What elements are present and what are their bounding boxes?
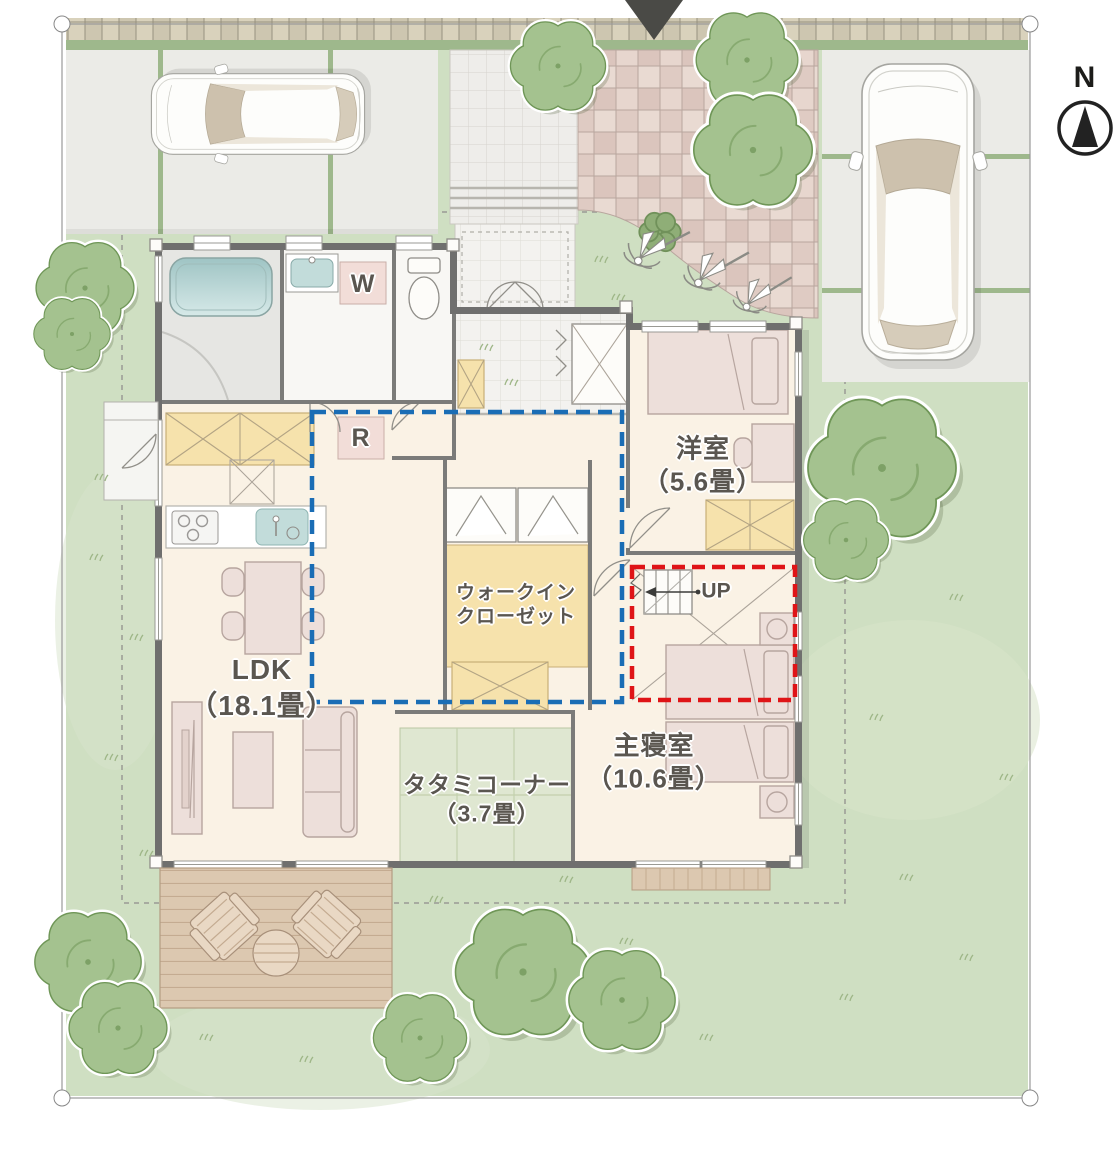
toilet-icon	[408, 258, 440, 319]
room-size: （3.7畳）	[403, 800, 571, 829]
compass-icon	[1059, 102, 1111, 154]
label-north: N	[1074, 59, 1097, 97]
label-walk-in-closet: ウォークイン クローゼット	[456, 582, 576, 631]
stove-icon	[172, 511, 218, 544]
washbasin-icon	[286, 254, 338, 292]
room-size: （18.1畳）	[189, 688, 335, 724]
nightstand-icon	[760, 786, 794, 818]
entrance-hall	[455, 314, 630, 414]
sink-icon	[256, 509, 308, 545]
room-size: （5.6畳）	[643, 466, 763, 499]
bedroom-step	[632, 868, 770, 890]
room-name: タタミコーナー	[403, 771, 571, 800]
label-master-bedroom: 主寝室 （10.6畳）	[586, 730, 722, 797]
sofa-icon	[303, 707, 357, 837]
room-name: LDK	[189, 652, 335, 688]
hanger-unit-icon	[518, 488, 588, 542]
hanger-unit-icon	[446, 488, 516, 542]
service-space	[104, 402, 158, 500]
washroom	[284, 250, 392, 400]
wood-deck	[160, 868, 392, 1008]
kitchen-counter	[166, 506, 326, 548]
bed-icon	[648, 330, 788, 414]
bed-icon	[666, 645, 794, 719]
bathroom	[162, 250, 296, 400]
site-floor-plan: 洋室 （5.6畳） LDK （18.1畳） ウォークイン クローゼット タタミコ…	[0, 0, 1116, 1164]
nightstand-icon	[760, 613, 794, 645]
label-stairs-up: UP	[701, 579, 730, 606]
car-icon-left	[151, 64, 371, 165]
label-refrigerator: R	[351, 422, 370, 454]
car-icon-right	[848, 64, 988, 369]
coffee-table	[233, 732, 273, 808]
bathtub-icon	[170, 258, 272, 316]
room-size: （10.6畳）	[586, 763, 722, 796]
room-name: クローゼット	[456, 606, 576, 630]
room-name: 洋室	[643, 433, 763, 466]
label-western-room: 洋室 （5.6畳）	[643, 433, 763, 500]
room-name: ウォークイン	[456, 582, 576, 606]
label-tatami-corner: タタミコーナー （3.7畳）	[403, 771, 571, 830]
house-shadow	[802, 330, 809, 868]
room-name: 主寝室	[586, 730, 722, 763]
deck-table-icon	[253, 930, 299, 976]
entrance-porch	[455, 224, 575, 310]
label-ldk: LDK （18.1畳）	[189, 652, 335, 724]
label-washing-machine: W	[351, 268, 376, 300]
